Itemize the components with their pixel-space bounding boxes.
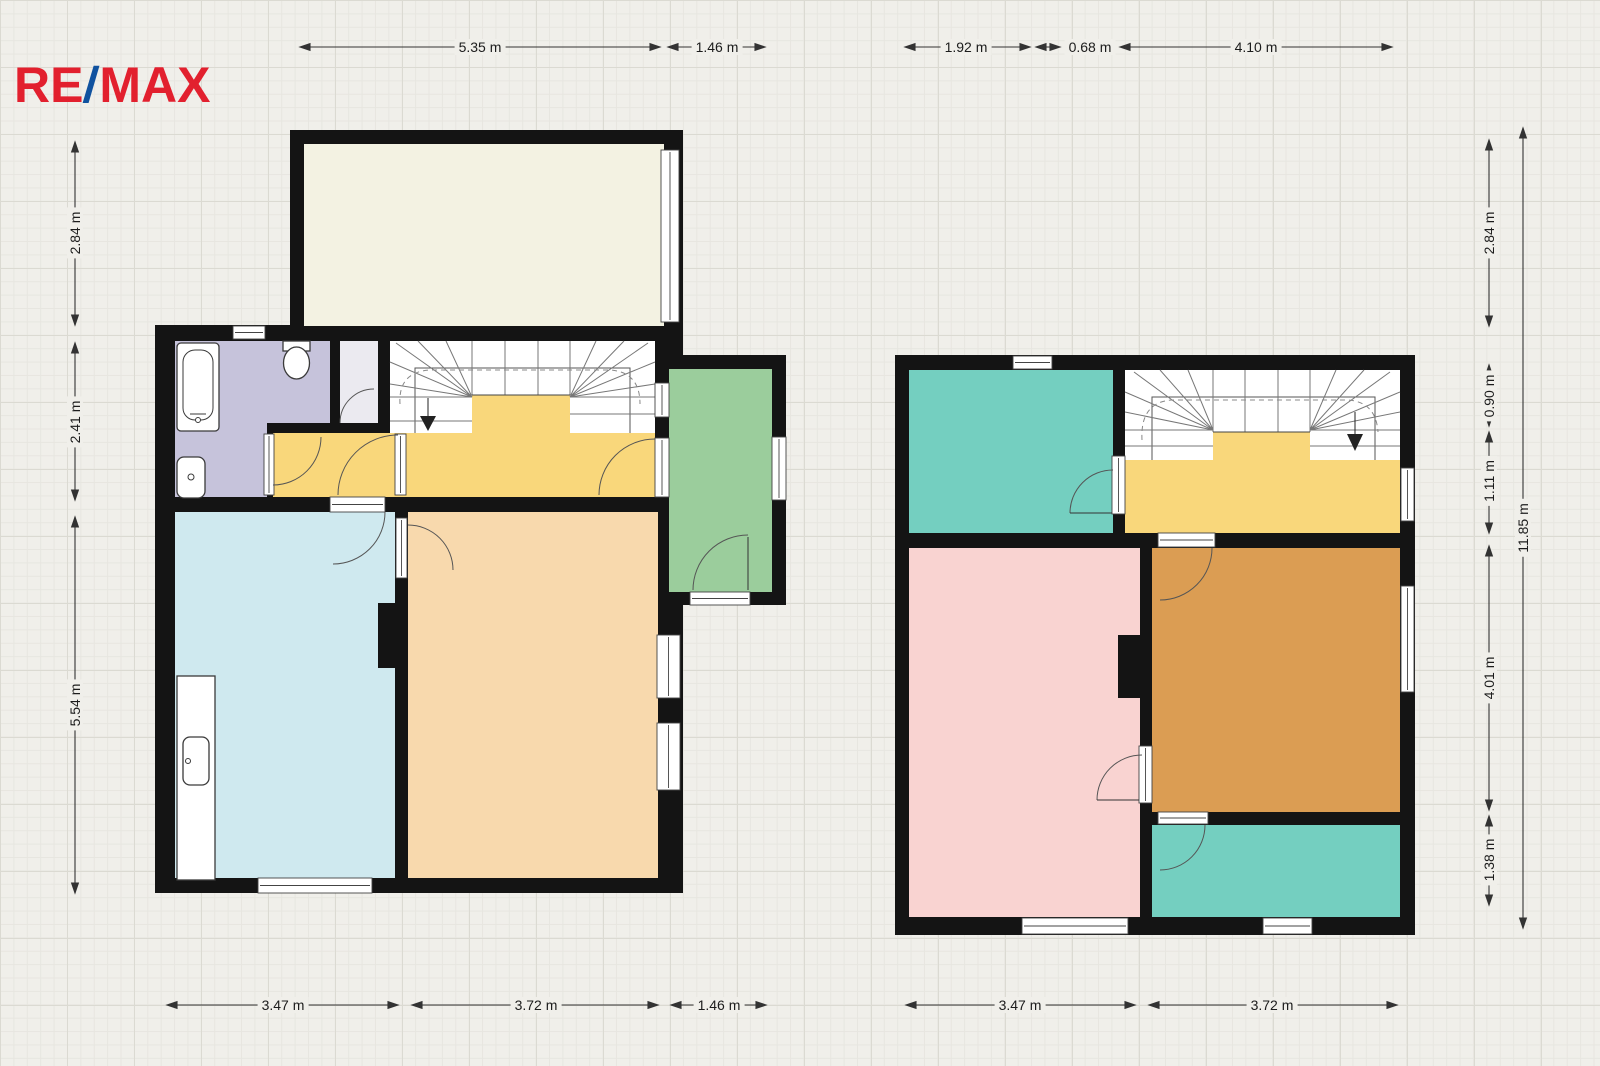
dim-label: 1.92 m xyxy=(941,39,992,55)
room-teal-bottom xyxy=(1152,825,1400,917)
dim-label: 3.47 m xyxy=(258,997,309,1013)
floorplan-drawing xyxy=(0,0,1600,1066)
window-brown-right-icon xyxy=(1401,586,1414,692)
dim-label: 0.68 m xyxy=(1065,39,1116,55)
door-brown-teal-icon xyxy=(1158,812,1208,824)
chimney-floor1 xyxy=(378,603,408,668)
room-bedroom-pink xyxy=(909,548,1140,917)
room-teal-top xyxy=(909,370,1113,533)
dim-label: 3.72 m xyxy=(511,997,562,1013)
floor2-plan xyxy=(895,355,1415,935)
dim-label: 2.84 m xyxy=(67,208,83,259)
window-veranda-left-icon xyxy=(655,383,669,417)
room-living xyxy=(408,512,658,878)
window-living-right-upper-icon xyxy=(657,635,680,698)
dim-label: 1.11 m xyxy=(1481,456,1497,506)
kitchen-counter-icon xyxy=(177,676,215,880)
stair-landing-tongue-f1 xyxy=(472,395,570,435)
room-closet xyxy=(340,341,378,423)
window-pink-bottom-icon xyxy=(1022,918,1128,934)
dim-label: 0.90 m xyxy=(1481,371,1497,422)
window-terrace-right-icon xyxy=(661,150,679,322)
door-landing-bottom-icon xyxy=(1158,533,1215,547)
window-teal-bottom-icon xyxy=(1263,918,1312,934)
bathtub-icon xyxy=(177,343,219,431)
room-landing xyxy=(1125,460,1400,533)
dim-label: 11.85 m xyxy=(1515,499,1531,557)
door-veranda-bottom-icon xyxy=(690,592,750,605)
door-frame-kitchen-living-icon xyxy=(396,518,407,578)
dim-label: 3.47 m xyxy=(995,997,1046,1013)
dim-label: 1.46 m xyxy=(694,997,745,1013)
washbasin-icon xyxy=(177,457,205,498)
window-bathroom-top-icon xyxy=(233,326,265,339)
door-frame-teal-landing-icon xyxy=(1112,456,1125,514)
dim-label: 4.10 m xyxy=(1231,39,1282,55)
floorplan-canvas: RE/MAX xyxy=(0,0,1600,1066)
dim-label: 3.72 m xyxy=(1247,997,1298,1013)
window-kitchen-bottom-icon xyxy=(258,878,372,893)
window-landing-right-icon xyxy=(1401,468,1414,521)
door-frame-hallway-icon xyxy=(395,434,406,495)
window-veranda-right-icon xyxy=(772,437,786,500)
stair-landing-tongue-f2 xyxy=(1213,432,1310,462)
door-kitchen-top-icon xyxy=(330,497,385,512)
door-frame-hall-veranda-icon xyxy=(655,438,669,497)
floor1-plan xyxy=(155,130,786,893)
dim-label: 5.35 m xyxy=(455,39,506,55)
room-hallway xyxy=(273,433,655,497)
window-living-right-lower-icon xyxy=(657,723,680,790)
dim-label: 2.84 m xyxy=(1481,208,1497,259)
dim-label: 1.46 m xyxy=(692,39,743,55)
toilet-icon xyxy=(283,341,310,379)
dim-068-arrows xyxy=(1036,44,1060,51)
room-terrace xyxy=(304,144,664,326)
dim-label: 1.38 m xyxy=(1481,835,1497,886)
dim-label: 2.41 m xyxy=(67,397,83,448)
window-teal-top-icon xyxy=(1013,356,1052,369)
door-frame-bath-hall-icon xyxy=(264,434,274,495)
chimney-floor2 xyxy=(1118,635,1152,698)
dim-label: 5.54 m xyxy=(67,680,83,731)
room-bedroom-brown xyxy=(1152,548,1400,812)
dim-label: 4.01 m xyxy=(1481,653,1497,704)
room-veranda xyxy=(669,369,772,592)
